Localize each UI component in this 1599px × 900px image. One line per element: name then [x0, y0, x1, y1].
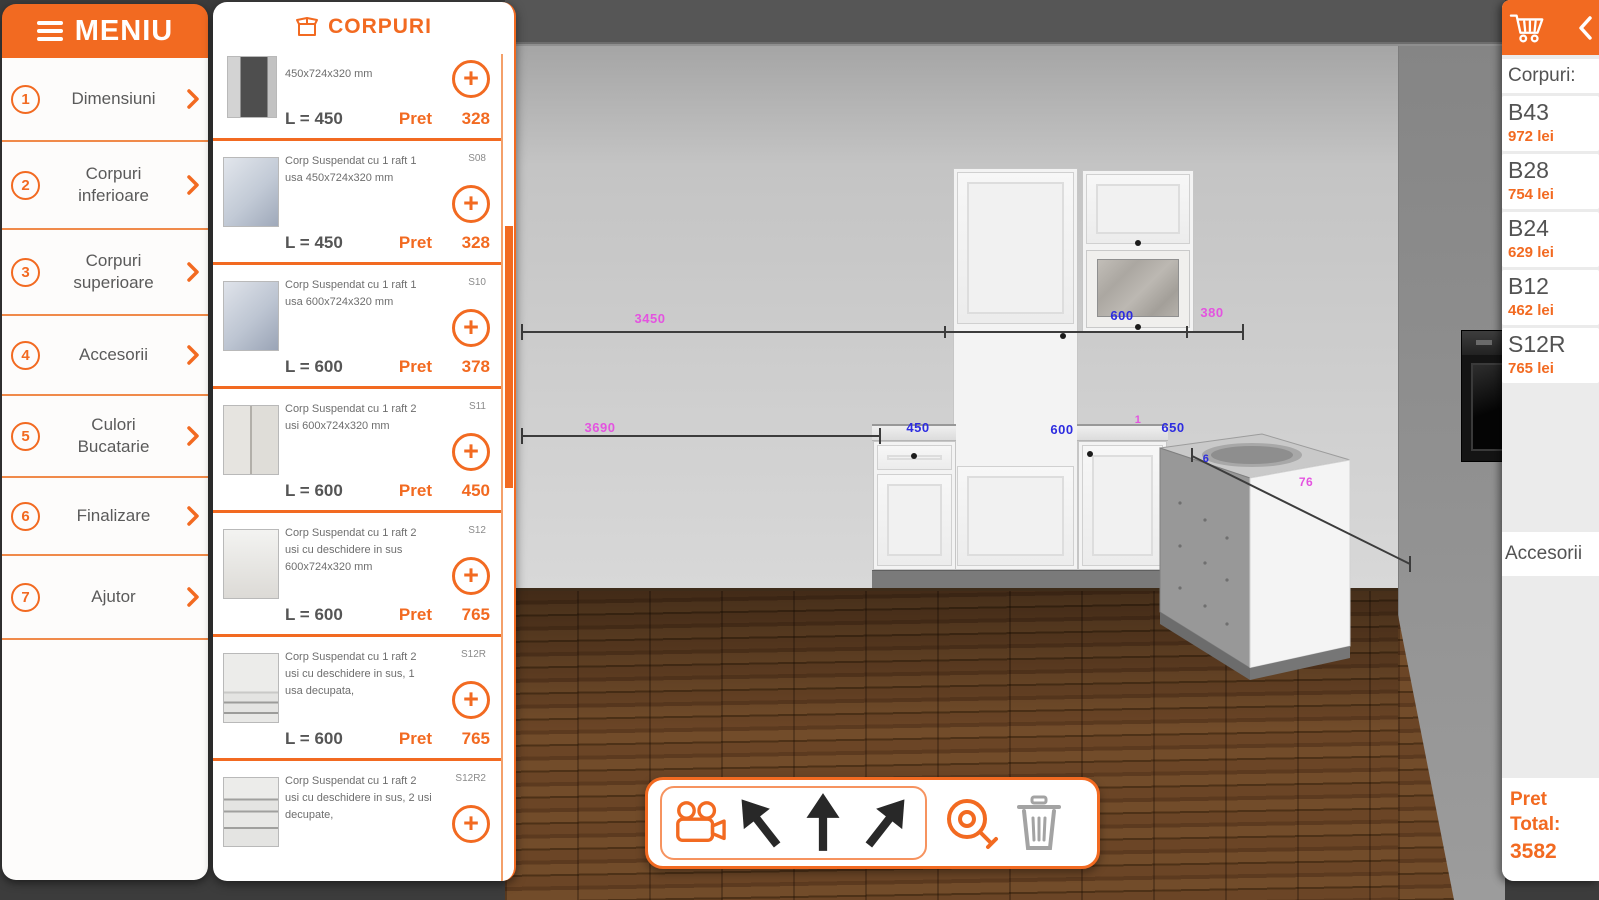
step-number-badge: 4: [11, 341, 40, 370]
dim-corner-diag: 76: [1293, 475, 1319, 489]
menu-body: 1 Dimensiuni 2 Corpuri inferioare 3 Corp…: [2, 58, 208, 880]
arrow-up-left-icon[interactable]: [731, 791, 789, 855]
step-number-badge: 2: [11, 171, 40, 200]
dim-corner-small: 6: [1200, 453, 1212, 465]
product-length: L = 600: [285, 729, 399, 749]
total-label-line2: Total:: [1510, 813, 1591, 838]
product-thumbnail: [223, 281, 279, 351]
product-length: L = 600: [285, 605, 399, 625]
menu-item-culori-bucatarie[interactable]: 5 Culori Bucatarie: [2, 396, 208, 478]
cart-item-name: S12R: [1508, 331, 1593, 358]
dim-top-gap: 380: [1187, 305, 1237, 320]
catalog-item: Corp Suspendat cu 1 raft 2 usi cu deschi…: [213, 634, 501, 758]
cart-item[interactable]: S12R 765 lei: [1502, 328, 1599, 383]
product-description: Corp Suspendat cu 1 raft 2 usi cu deschi…: [285, 649, 433, 700]
box-icon: [295, 15, 319, 39]
price-label: Pret: [399, 109, 432, 129]
product-length: L = 600: [285, 481, 399, 501]
cart-item[interactable]: B24 629 lei: [1502, 212, 1599, 267]
product-price: 328: [448, 233, 490, 253]
menu-item-label: Corpuri inferioare: [59, 163, 169, 207]
trash-icon[interactable]: [1015, 794, 1063, 852]
total-value: 3582: [1510, 838, 1591, 865]
menu-item-label: Dimensiuni: [40, 88, 187, 110]
hamburger-icon: [37, 21, 63, 41]
product-code: S11: [469, 401, 486, 412]
step-number-badge: 7: [11, 583, 40, 612]
chevron-right-icon: [187, 426, 199, 446]
catalog-item: Corp Suspendat cu 1 raft 1 usa 600x724x3…: [213, 262, 501, 386]
product-price: 450: [448, 481, 490, 501]
cart-item-price: 754 lei: [1508, 186, 1593, 203]
cart-item-price: 972 lei: [1508, 128, 1593, 145]
product-code: S12R: [461, 649, 486, 660]
product-price: 765: [448, 605, 490, 625]
dim-wall-cab-width: 600: [1097, 308, 1147, 323]
product-thumbnail: [223, 653, 279, 723]
cart-item-price: 765 lei: [1508, 360, 1593, 377]
dim-oven-width: 600: [1037, 422, 1087, 437]
product-length: L = 450: [285, 233, 399, 253]
catalog-scrollbar-thumb[interactable]: [505, 226, 513, 488]
chevron-right-icon: [187, 262, 199, 282]
cart-item-name: B28: [1508, 157, 1593, 184]
product-code: S12R2: [455, 773, 486, 784]
product-length: L = 450: [285, 109, 399, 129]
kitchen-3d-viewport[interactable]: 3450 600 380 3690 450 600 1 650 6 76: [505, 0, 1505, 900]
menu-item-label: Finalizare: [40, 505, 187, 527]
product-description: Corp Suspendat cu 1 raft 1 usa 600x724x3…: [285, 277, 433, 311]
catalog-scrollbar[interactable]: [501, 54, 514, 881]
viewport-toolbar: [645, 777, 1100, 869]
step-number-badge: 6: [11, 502, 40, 531]
menu-item-accesorii[interactable]: 4 Accesorii: [2, 316, 208, 396]
step-number-badge: 1: [11, 85, 40, 114]
cart-item-name: B43: [1508, 99, 1593, 126]
cart-panel: Corpuri: B43 972 lei B28 754 lei B24 629…: [1502, 0, 1599, 881]
cart-header[interactable]: [1502, 0, 1599, 55]
step-number-badge: 3: [11, 258, 40, 287]
product-description: Corp Suspendat cu 1 raft 2 usi 600x724x3…: [285, 401, 433, 435]
product-description: Corp Suspendat cu 1 raft 2 usi cu deschi…: [285, 773, 433, 824]
add-product-button[interactable]: +: [452, 60, 490, 98]
cart-item-price: 629 lei: [1508, 244, 1593, 261]
total-label-line1: Pret: [1510, 788, 1591, 813]
menu-item-label: Culori Bucatarie: [64, 414, 164, 458]
measure-tape-icon[interactable]: [943, 795, 999, 851]
chevron-right-icon: [187, 506, 199, 526]
chevron-right-icon: [187, 587, 199, 607]
cart-item-price: 462 lei: [1508, 302, 1593, 319]
product-description: Corp Suspendat cu 1 raft 2 usi cu deschi…: [285, 525, 433, 576]
add-product-button[interactable]: +: [452, 433, 490, 471]
price-label: Pret: [399, 233, 432, 253]
menu-item-corpuri-superioare[interactable]: 3 Corpuri superioare: [2, 230, 208, 316]
menu-item-label: Accesorii: [40, 344, 187, 366]
product-code: S08: [468, 153, 486, 164]
product-price: 328: [448, 109, 490, 129]
menu-title: MENIU: [75, 15, 173, 48]
dim-top-total: 3450: [620, 311, 680, 326]
product-code: S12: [468, 525, 486, 536]
cart-item[interactable]: B12 462 lei: [1502, 270, 1599, 325]
arrow-up-right-icon[interactable]: [857, 791, 915, 855]
catalog-item: 450x724x320 mm + L = 450 Pret 328: [213, 52, 501, 138]
dim-corner-width: 650: [1148, 420, 1198, 435]
catalog-item-list: 450x724x320 mm + L = 450 Pret 328 Corp S…: [213, 52, 501, 881]
cart-section-title: Corpuri:: [1502, 59, 1599, 93]
menu-item-corpuri-inferioare[interactable]: 2 Corpuri inferioare: [2, 142, 208, 230]
cart-total: Pret Total: 3582: [1502, 778, 1599, 881]
catalog-item: Corp Suspendat cu 1 raft 2 usi 600x724x3…: [213, 386, 501, 510]
catalog-item: Corp Suspendat cu 1 raft 1 usa 450x724x3…: [213, 138, 501, 262]
chevron-right-icon: [187, 345, 199, 365]
product-thumbnail: [223, 405, 279, 475]
cart-item-name: B12: [1508, 273, 1593, 300]
catalog-panel: CORPURI 450x724x320 mm + L = 450 Pret 32…: [213, 2, 516, 881]
menu-header[interactable]: MENIU: [2, 4, 208, 58]
add-product-button[interactable]: +: [452, 185, 490, 223]
chevron-right-icon: [187, 89, 199, 109]
camera-move-group: [660, 786, 927, 860]
product-thumbnail: [223, 157, 279, 227]
add-product-button[interactable]: +: [452, 309, 490, 347]
dim-base-left: 450: [893, 420, 943, 435]
cart-item[interactable]: B43 972 lei: [1502, 96, 1599, 151]
product-code: S10: [468, 277, 486, 288]
catalog-item: Corp Suspendat cu 1 raft 2 usi cu deschi…: [213, 758, 501, 881]
add-product-button[interactable]: +: [452, 681, 490, 719]
cart-item-name: B24: [1508, 215, 1593, 242]
cart-icon: [1509, 11, 1547, 45]
catalog-header: CORPURI: [213, 2, 514, 52]
catalog-item: Corp Suspendat cu 1 raft 2 usi cu deschi…: [213, 510, 501, 634]
menu-item-label: Corpuri superioare: [59, 250, 169, 294]
price-label: Pret: [399, 481, 432, 501]
product-thumbnail: [223, 529, 279, 599]
product-thumbnail: [227, 56, 277, 118]
product-description: 450x724x320 mm: [285, 66, 433, 83]
price-label: Pret: [399, 729, 432, 749]
step-number-badge: 5: [11, 422, 40, 451]
product-length: L = 600: [285, 357, 399, 377]
cart-accessories-label: Accesorii: [1502, 532, 1599, 576]
product-thumbnail: [223, 777, 279, 847]
product-description: Corp Suspendat cu 1 raft 1 usa 450x724x3…: [285, 153, 433, 187]
menu-item-label: Ajutor: [40, 586, 187, 608]
add-product-button[interactable]: +: [452, 805, 490, 843]
add-product-button[interactable]: +: [452, 557, 490, 595]
catalog-title: CORPURI: [328, 15, 432, 39]
dimension-lines: [505, 0, 1505, 900]
product-price: 378: [448, 357, 490, 377]
price-label: Pret: [399, 357, 432, 377]
chevron-left-icon[interactable]: [1578, 16, 1592, 40]
menu-item-finalizare[interactable]: 6 Finalizare: [2, 478, 208, 556]
product-price: 765: [448, 729, 490, 749]
arrow-up-icon[interactable]: [794, 791, 852, 855]
menu-item-ajutor[interactable]: 7 Ajutor: [2, 556, 208, 640]
dim-gap-one: 1: [1132, 414, 1144, 426]
menu-item-dimensiuni[interactable]: 1 Dimensiuni: [2, 58, 208, 142]
cart-item[interactable]: B28 754 lei: [1502, 154, 1599, 209]
price-label: Pret: [399, 605, 432, 625]
main-menu-panel: MENIU 1 Dimensiuni 2 Corpuri inferioare …: [2, 4, 208, 880]
dim-bottom-total: 3690: [570, 420, 630, 435]
video-camera-icon[interactable]: [672, 799, 726, 847]
chevron-right-icon: [187, 175, 199, 195]
